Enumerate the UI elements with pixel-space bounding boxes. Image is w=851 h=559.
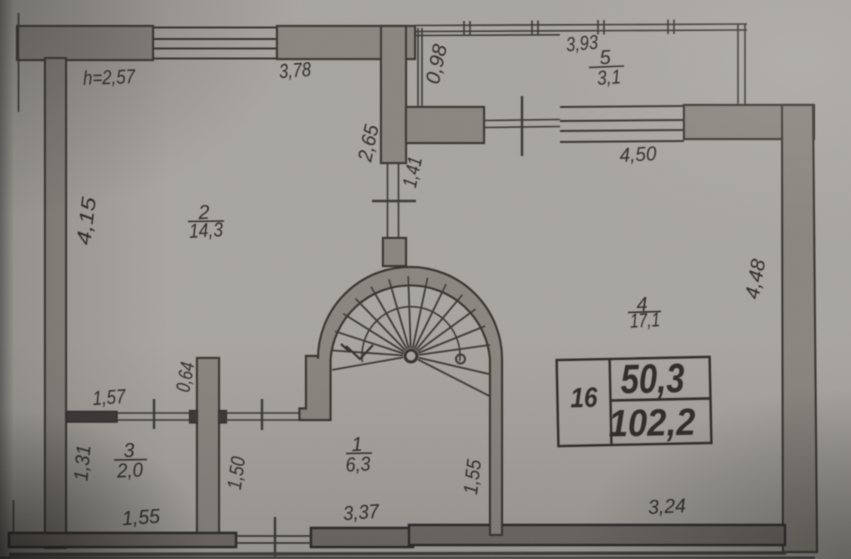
svg-text:17,1: 17,1 — [629, 309, 660, 333]
svg-text:14,3: 14,3 — [188, 219, 223, 243]
